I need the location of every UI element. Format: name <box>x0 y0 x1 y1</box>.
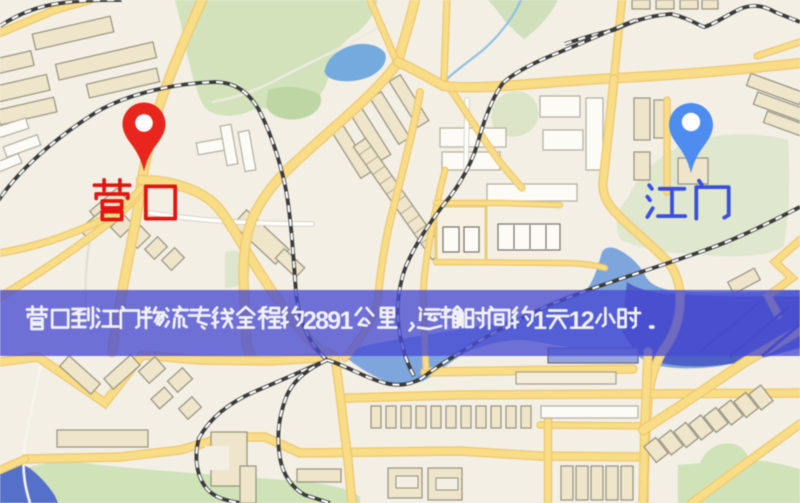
svg-text:1: 1 <box>340 307 354 335</box>
svg-text:2: 2 <box>581 307 595 335</box>
svg-text:1: 1 <box>533 307 547 335</box>
